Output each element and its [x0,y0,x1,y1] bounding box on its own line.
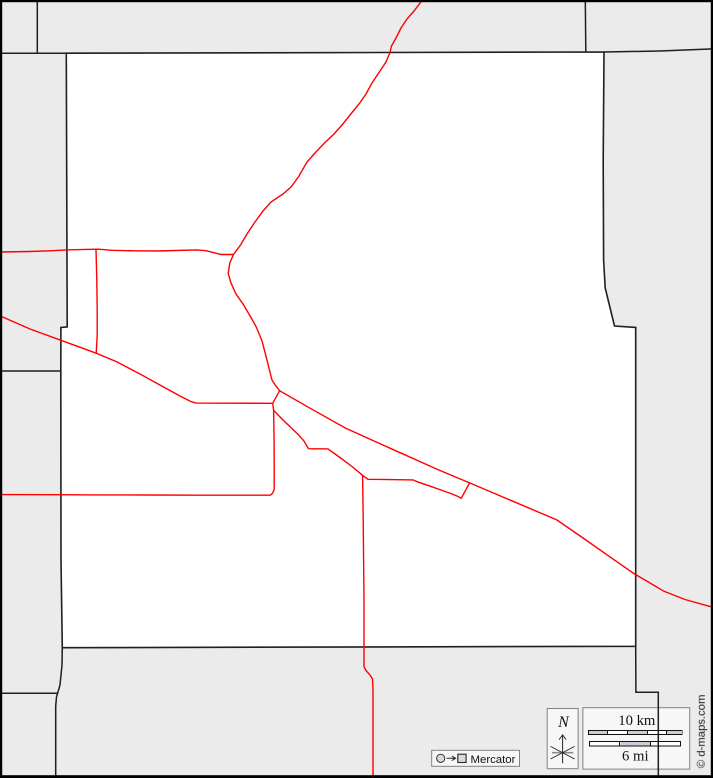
svg-text:© d-maps.com: © d-maps.com [696,695,708,769]
svg-text:6 mi: 6 mi [622,749,649,765]
svg-text:10 km: 10 km [618,713,656,729]
svg-text:Mercator: Mercator [471,754,516,766]
svg-text:N: N [557,714,570,731]
